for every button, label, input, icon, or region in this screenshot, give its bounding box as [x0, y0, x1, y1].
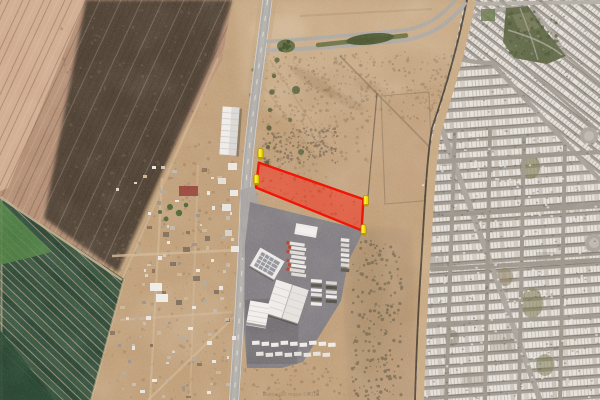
svg-text:Datos del mapa ©2019: Datos del mapa ©2019 — [263, 391, 319, 398]
